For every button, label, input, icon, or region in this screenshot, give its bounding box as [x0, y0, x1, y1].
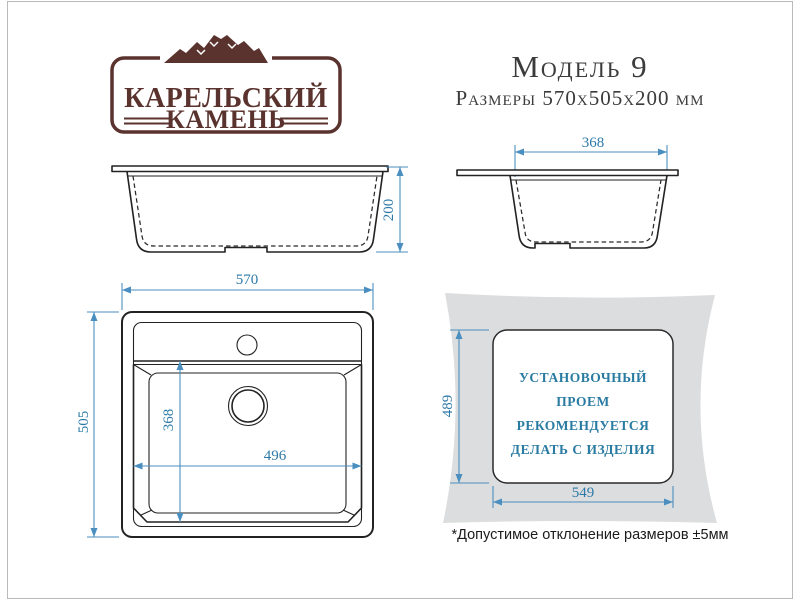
- arrow-right-icon: [658, 149, 667, 156]
- arrow-left-icon: [122, 287, 131, 294]
- dim-overall-depth: 505: [76, 312, 119, 537]
- arrow-down-icon: [397, 243, 404, 252]
- install-note-line4: ДЕЛАТЬ С ИЗДЕЛИЯ: [511, 442, 655, 457]
- dim-overall-width: 570: [122, 272, 373, 310]
- tolerance-footnote: *Допустимое отклонение размеров ±5мм: [435, 527, 745, 543]
- dim-overall-width-label: 570: [236, 272, 259, 288]
- arrow-right-icon: [364, 287, 373, 294]
- faucet-hole: [237, 335, 257, 355]
- brand-logo: КАРЕЛЬСКИЙ КАМЕНЬ: [100, 20, 350, 140]
- dim-overall-depth-label: 505: [76, 411, 92, 434]
- arrow-left-icon: [515, 149, 524, 156]
- dim-cutout-depth-label: 489: [440, 395, 456, 418]
- dim-bowl-depth-top-label: 368: [161, 409, 177, 432]
- arrow-up-icon: [91, 312, 98, 321]
- front-view: 200: [95, 140, 430, 280]
- mountains-icon: [164, 35, 268, 63]
- dim-bowl-width-label: 496: [264, 448, 287, 464]
- front-bowl-hidden-line: [133, 176, 377, 246]
- front-bowl-outline: [127, 172, 383, 253]
- side-bowl-outline: [510, 176, 667, 249]
- top-view: 570 505 368 49: [75, 270, 405, 560]
- front-rim: [112, 166, 388, 172]
- install-note-line3: РЕКОМЕНДУЕТСЯ: [517, 418, 650, 433]
- title-block: Модель 9 Размеры 570x505x200 мм: [420, 50, 740, 112]
- arrow-up-icon: [397, 167, 404, 176]
- dim-bowl-depth-label: 368: [582, 135, 605, 151]
- dim-cutout-width-label: 549: [572, 485, 595, 501]
- side-view: 368: [440, 135, 700, 280]
- drain-hole: [229, 387, 268, 426]
- dim-height-label: 200: [381, 199, 397, 222]
- install-view: УСТАНОВОЧНЫЙ ПРОЕМ РЕКОМЕНДУЕТСЯ ДЕЛАТЬ …: [435, 285, 735, 540]
- side-bowl-hidden-line: [516, 180, 661, 242]
- page-subtitle: Размеры 570x505x200 мм: [420, 84, 740, 112]
- install-note-line2: ПРОЕМ: [556, 394, 609, 409]
- page-title: Модель 9: [420, 50, 740, 84]
- arrow-down-icon: [91, 528, 98, 537]
- side-rim: [457, 170, 678, 176]
- brand-name-line2: КАМЕНЬ: [166, 105, 286, 134]
- dim-height: 200: [376, 167, 408, 252]
- install-note-line1: УСТАНОВОЧНЫЙ: [519, 370, 647, 385]
